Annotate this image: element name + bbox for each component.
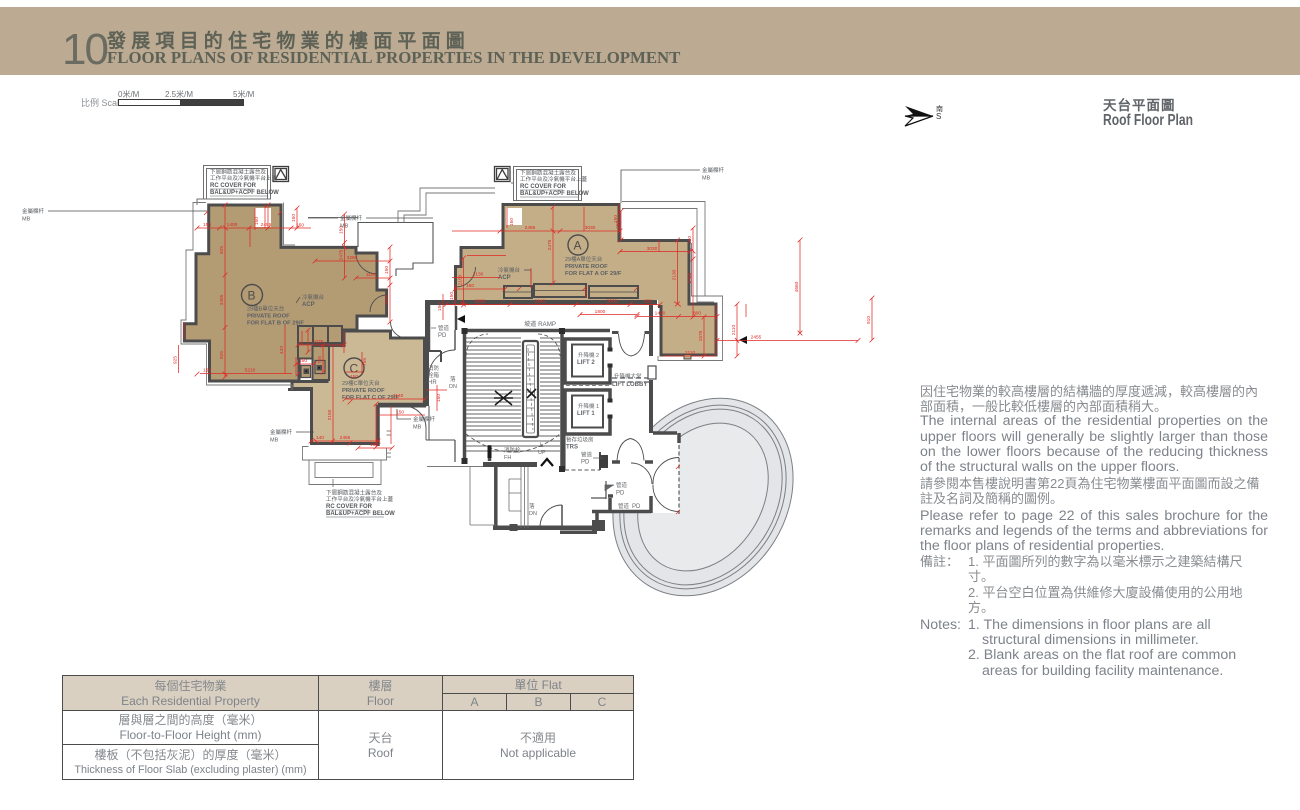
svg-text:1100: 1100 (384, 295, 390, 306)
svg-text:消防: 消防 (428, 364, 440, 372)
svg-text:2140: 2140 (393, 393, 404, 399)
svg-text:升降機 2: 升降機 2 (578, 351, 599, 359)
svg-text:LIFT LOBBY: LIFT LOBBY (612, 382, 647, 388)
svg-text:BAL&UP+ACPF BELOW: BAL&UP+ACPF BELOW (520, 191, 589, 197)
svg-text:150: 150 (466, 283, 474, 289)
svg-text:150: 150 (613, 215, 619, 223)
svg-text:2150: 2150 (458, 274, 464, 285)
svg-text:2130: 2130 (473, 272, 484, 278)
svg-text:C: C (350, 362, 359, 376)
svg-text:RC COVER FOR: RC COVER FOR (520, 184, 567, 190)
svg-text:BAL&UP+ACPF BELOW: BAL&UP+ACPF BELOW (210, 190, 279, 196)
svg-text:FOR FLAT C OF 29/F: FOR FLAT C OF 29/F (342, 395, 399, 401)
svg-text:2130: 2130 (672, 269, 678, 280)
svg-text:FOR FLAT A OF 29/F: FOR FLAT A OF 29/F (565, 271, 622, 277)
svg-text:150: 150 (437, 303, 443, 311)
svg-text:MB: MB (702, 176, 711, 182)
svg-text:2475: 2475 (547, 239, 553, 250)
svg-text:1400: 1400 (227, 222, 238, 228)
svg-text:3455: 3455 (219, 294, 225, 305)
svg-text:3280: 3280 (347, 255, 358, 261)
svg-text:管道: 管道 (616, 481, 628, 489)
svg-text:金屬欄杆: 金屬欄杆 (413, 415, 436, 423)
svg-text:金屬欄杆: 金屬欄杆 (22, 207, 45, 215)
svg-text:暫存垃圾房: 暫存垃圾房 (566, 436, 594, 444)
svg-text:HR: HR (428, 380, 437, 386)
svg-text:冷氣機台: 冷氣機台 (302, 293, 325, 301)
svg-text:工作平台及冷氣機平台上蓋: 工作平台及冷氣機平台上蓋 (326, 495, 394, 503)
svg-text:150: 150 (509, 218, 515, 226)
svg-text:150: 150 (644, 299, 652, 305)
svg-text:3030: 3030 (585, 225, 596, 231)
svg-text:150: 150 (350, 374, 358, 380)
svg-text:3030: 3030 (607, 299, 618, 305)
svg-text:PRIVATE ROOF: PRIVATE ROOF (342, 388, 385, 394)
svg-text:3030: 3030 (647, 246, 658, 252)
svg-text:150: 150 (291, 214, 297, 222)
svg-text:2110: 2110 (731, 325, 737, 336)
svg-text:2455: 2455 (525, 225, 536, 231)
svg-text:150: 150 (436, 394, 442, 402)
svg-text:150: 150 (296, 223, 304, 229)
svg-text:2475: 2475 (339, 249, 345, 260)
svg-text:4660: 4660 (794, 281, 800, 292)
svg-text:ACP: ACP (498, 275, 511, 281)
svg-text:冷氣機台: 冷氣機台 (498, 266, 521, 274)
svg-text:29樓C單位天台: 29樓C單位天台 (342, 379, 380, 387)
svg-text:DN: DN (449, 384, 457, 390)
svg-text:MB: MB (270, 438, 279, 444)
svg-text:150: 150 (203, 368, 211, 374)
svg-text:2455: 2455 (751, 335, 762, 341)
svg-text:LIFT 1: LIFT 1 (577, 411, 595, 417)
svg-text:150: 150 (449, 292, 455, 300)
svg-text:2680: 2680 (475, 299, 486, 305)
svg-text:5210: 5210 (245, 368, 256, 374)
svg-text:金屬欄杆: 金屬欄杆 (702, 166, 725, 174)
svg-text:2110: 2110 (685, 350, 696, 356)
svg-text:金屬欄杆: 金屬欄杆 (270, 428, 293, 436)
svg-text:落: 落 (450, 375, 456, 383)
svg-text:PD: PD (438, 333, 447, 339)
svg-text:PD: PD (616, 491, 625, 497)
svg-text:落: 落 (529, 502, 535, 510)
svg-text:1100: 1100 (366, 272, 377, 278)
svg-text:工作平台及冷氣機平台上蓋: 工作平台及冷氣機平台上蓋 (210, 174, 278, 182)
svg-text:1035: 1035 (313, 339, 324, 345)
svg-text:755: 755 (317, 356, 323, 364)
svg-text:PRIVATE ROOF: PRIVATE ROOF (247, 314, 290, 320)
svg-text:925: 925 (173, 356, 179, 364)
svg-text:FOR FLAT B OF 29/F: FOR FLAT B OF 29/F (247, 321, 304, 327)
svg-text:PD: PD (632, 504, 641, 510)
svg-text:下層鋼筋混凝土露台及: 下層鋼筋混凝土露台及 (520, 169, 576, 177)
svg-text:下層鋼筋混凝土露台及: 下層鋼筋混凝土露台及 (326, 489, 382, 497)
svg-text:150: 150 (203, 222, 211, 228)
svg-text:29樓B單位天台: 29樓B單位天台 (247, 305, 285, 313)
svg-text:1800: 1800 (595, 309, 606, 315)
svg-text:755: 755 (362, 358, 368, 366)
svg-text:925: 925 (219, 246, 225, 254)
svg-text:925: 925 (219, 351, 225, 359)
svg-text:RC COVER FOR: RC COVER FOR (210, 183, 257, 189)
svg-text:PD: PD (581, 460, 590, 466)
svg-text:BAL&UP+ACPF BELOW: BAL&UP+ACPF BELOW (326, 511, 395, 517)
svg-text:管道: 管道 (438, 324, 450, 332)
svg-text:29樓A單位天台: 29樓A單位天台 (565, 255, 603, 263)
svg-text:2455: 2455 (340, 435, 351, 441)
svg-text:下層鋼筋混凝土露台及: 下層鋼筋混凝土露台及 (210, 168, 266, 176)
svg-text:升降機大堂: 升降機大堂 (614, 372, 642, 380)
svg-text:150: 150 (396, 410, 404, 416)
svg-text:PRIVATE ROOF: PRIVATE ROOF (565, 264, 608, 270)
svg-text:上: 上 (538, 441, 544, 449)
svg-text:150: 150 (254, 217, 260, 225)
svg-text:DN: DN (529, 511, 537, 517)
svg-text:升降機 1: 升降機 1 (578, 402, 599, 410)
svg-text:800: 800 (693, 311, 701, 317)
svg-text:420: 420 (279, 346, 285, 354)
svg-text:工作平台及冷氣機平台上蓋: 工作平台及冷氣機平台上蓋 (520, 175, 588, 183)
svg-text:管道: 管道 (581, 451, 593, 459)
svg-text:150: 150 (339, 226, 345, 234)
svg-text:TRS: TRS (566, 445, 578, 451)
svg-text:栓箱: 栓箱 (428, 371, 440, 379)
svg-text:150: 150 (687, 236, 693, 244)
svg-text:150: 150 (370, 442, 378, 448)
svg-text:MB: MB (22, 217, 31, 223)
svg-text:1575: 1575 (698, 330, 704, 341)
svg-text:910: 910 (866, 316, 872, 324)
svg-text:2150: 2150 (327, 409, 333, 420)
svg-text:MB: MB (413, 425, 422, 431)
svg-text:150: 150 (384, 266, 390, 274)
svg-text:B: B (248, 289, 256, 303)
svg-text:UP: UP (538, 450, 546, 456)
svg-text:FH: FH (504, 455, 511, 461)
svg-text:2140: 2140 (535, 299, 546, 305)
svg-text:管道: 管道 (618, 502, 630, 510)
svg-text:A: A (574, 239, 582, 253)
svg-text:RC COVER FOR: RC COVER FOR (326, 504, 373, 510)
svg-text:1400: 1400 (655, 311, 666, 317)
svg-text:坡道 RAMP: 坡道 RAMP (524, 320, 556, 328)
svg-text:150: 150 (299, 358, 307, 364)
svg-text:LIFT 2: LIFT 2 (577, 360, 595, 366)
svg-text:ACP: ACP (302, 302, 315, 308)
svg-text:2455: 2455 (261, 222, 272, 228)
svg-text:消防栓: 消防栓 (504, 446, 521, 454)
svg-text:140: 140 (316, 435, 324, 441)
svg-text:3455: 3455 (687, 272, 693, 283)
